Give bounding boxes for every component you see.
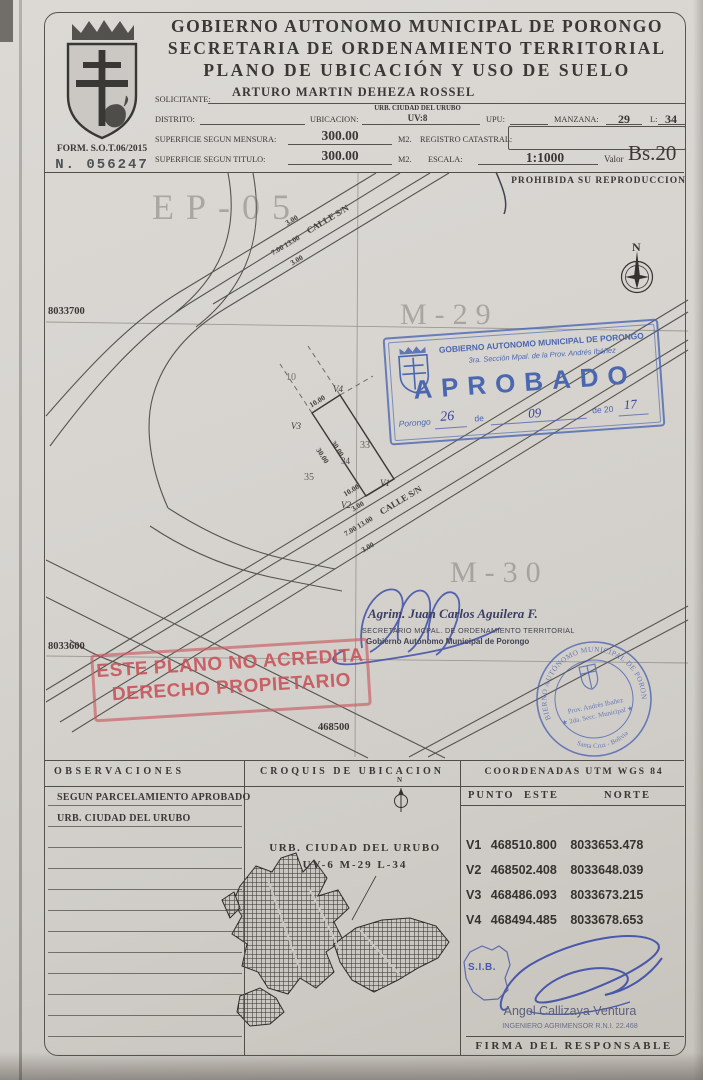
coord-v3-este: 468486.093 [491, 888, 557, 902]
croquis-label-urb: URB. CIUDAD DEL URUBO [250, 842, 460, 854]
observaciones-line1: SEGUN PARCELAMIENTO APROBADO [57, 792, 251, 803]
surveyor-title: INGENIERO AGRIMENSOR R.N.I. 22.468 [470, 1021, 670, 1030]
scan-fold-line [19, 0, 22, 1080]
distrito-line [200, 124, 305, 125]
ubicacion-line [362, 124, 480, 125]
croquis-north-label: N [397, 776, 402, 784]
ubicacion-value-line1: URB. CIUDAD DEL URUBO [355, 105, 480, 112]
coord-v4-norte: 8033678.653 [570, 913, 643, 927]
coord-v4-punto: V4 [466, 913, 481, 927]
aprobado-year: 17 [623, 396, 637, 413]
grid-label-north-1: 8033700 [48, 306, 85, 317]
titulo-line [288, 164, 392, 165]
croquis-label-lot: UV-6 M-29 L-34 [250, 859, 460, 871]
scan-bottom-shadow [0, 1052, 703, 1080]
upu-line [510, 124, 548, 125]
coord-v2-punto: V2 [466, 863, 481, 877]
coord-v4-este: 468494.485 [491, 913, 557, 927]
lot-number: 34 [341, 456, 350, 466]
coord-v2-este: 468502.408 [491, 863, 557, 877]
mensura-value: 300.00 [288, 128, 392, 144]
ubicacion-label: UBICACION: [310, 115, 358, 124]
secretary-name: Agrim. Juan Carlos Aguilera F. [368, 606, 538, 622]
secretary-role: SECRETARIO MCPAL. DE ORDENAMIENTO TERRIT… [362, 626, 575, 635]
aprobado-month: 09 [528, 405, 542, 422]
coord-row-v4: V4 468494.485 8033678.653 [466, 913, 643, 927]
firma-label: FIRMA DEL RESPONSABLE [460, 1040, 688, 1052]
block-label-m29: M-29 [400, 298, 499, 332]
footer-top-border [44, 760, 684, 761]
valor-label: Valor [604, 154, 624, 164]
sib-label: S.I.B. [468, 962, 496, 973]
secretary-org: Gobierno Autónomo Municipal de Porongo [366, 637, 529, 646]
m2-label-b: M2. [398, 155, 412, 164]
coord-subheader-rule [460, 805, 686, 806]
aprobado-de1: de [474, 413, 484, 424]
footer-divider-1 [244, 760, 245, 1055]
coord-col-norte: NORTE [604, 790, 651, 801]
manzana-label: MANZANA: [554, 115, 599, 124]
lote-line [658, 124, 686, 125]
vertex-label-v1: V1 [380, 478, 390, 488]
distrito-label: DISTRITO: [155, 115, 195, 124]
block-label-m30: M-30 [450, 556, 549, 590]
registro-label: REGISTRO CATASTRAL: [420, 135, 512, 144]
mensura-label: SUPERFICIE SEGUN MENSURA: [155, 135, 276, 144]
vertex-label-v4: V4 [333, 384, 343, 394]
valor-value: Bs.20 [628, 141, 676, 166]
zone-label-ep05: EP-05 [152, 186, 302, 228]
solicitante-label: SOLICITANTE: [155, 95, 211, 104]
m2-label-a: M2. [398, 135, 412, 144]
aprobado-day: 26 [440, 409, 455, 426]
form-number: FORM. S.O.T.06/2015 [46, 144, 158, 154]
manzana-line [606, 124, 642, 125]
upu-label: UPU: [486, 115, 505, 124]
coord-row-v3: V3 468486.093 8033673.215 [466, 888, 643, 902]
grid-label-north-2: 8033600 [48, 641, 85, 652]
coord-v3-norte: 8033673.215 [570, 888, 643, 902]
vertex-label-v3: V3 [291, 421, 301, 431]
neighbor-lot-35: 35 [304, 472, 314, 483]
observaciones-line2: URB. CIUDAD DEL URUBO [57, 813, 191, 824]
vertex-label-v2: V2 [341, 500, 351, 510]
scanned-plan-document: GOBIERNO AUTÓNOMO MUNICIPAL DE PORONGO S… [0, 0, 703, 1080]
coord-v1-norte: 8033653.478 [570, 838, 643, 852]
coord-v1-punto: V1 [466, 838, 481, 852]
aprobado-de2: de 20 [592, 404, 614, 415]
coord-col-este: ESTE [524, 790, 559, 801]
neighbor-lot-33: 33 [360, 440, 370, 451]
coord-v1-este: 468510.800 [491, 838, 557, 852]
grid-label-east-1: 468500 [318, 722, 350, 733]
solicitante-line [208, 103, 686, 104]
surveyor-name: Angel Callizaya Ventura [470, 1004, 670, 1018]
neighbor-lot-10: 10 [286, 372, 296, 383]
prohibida-notice: PROHIBIDA SU REPRODUCCION [500, 176, 686, 186]
firma-rule [466, 1036, 684, 1037]
escala-line [478, 164, 598, 165]
solicitante-value: ARTURO MARTIN DEHEZA ROSSEL [232, 85, 475, 100]
escala-label: ESCALA: [428, 155, 463, 164]
form-serial-number: N. 056247 [40, 157, 164, 173]
scan-corner-mark [0, 0, 13, 42]
coord-v2-norte: 8033648.039 [570, 863, 643, 877]
titulo-value: 300.00 [288, 148, 392, 164]
scan-right-shadow [693, 0, 703, 1080]
coord-v3-punto: V3 [466, 888, 481, 902]
coord-col-punto: PUNTO [468, 790, 515, 801]
page-subtitle-1: SECRETARIA DE ORDENAMIENTO TERRITORIAL [150, 38, 684, 59]
coord-row-v2: V2 468502.408 8033648.039 [466, 863, 643, 877]
coord-row-v1: V1 468510.800 8033653.478 [466, 838, 643, 852]
croquis-header: CROQUIS DE UBICACION [244, 766, 460, 777]
page-subtitle-2: PLANO DE UBICACIÓN Y USO DE SUELO [150, 60, 684, 81]
titulo-label: SUPERFICIE SEGUN TITULO: [155, 155, 265, 164]
mensura-line [288, 144, 392, 145]
aprobado-stamp: GOBIERNO AUTONOMO MUNICIPAL DE PORONGO 3… [383, 319, 666, 446]
ubicacion-value-line2: UV:8 [355, 113, 480, 123]
page-title: GOBIERNO AUTONOMO MUNICIPAL DE PORONGO [150, 16, 684, 37]
observaciones-header: OBSERVACIONES [54, 766, 185, 777]
compass-north-label: N [632, 240, 641, 255]
coordinates-header: COORDENADAS UTM WGS 84 [460, 766, 688, 777]
